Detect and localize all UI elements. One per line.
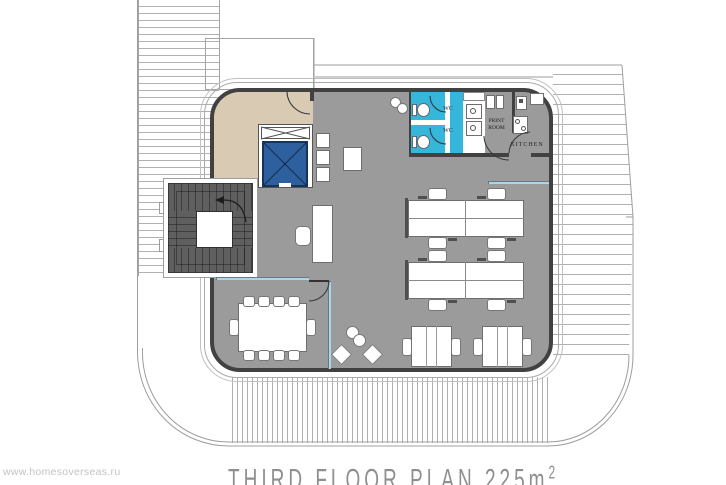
storage-box-1: [316, 133, 330, 148]
chair: [402, 338, 412, 356]
print-room-label-2: ROOM: [485, 126, 508, 132]
desk-bank-1-divider-h: [408, 218, 524, 219]
roof-hatch-right: [553, 65, 635, 355]
hot-desk-1-line: [436, 326, 437, 367]
stair-core: [196, 211, 233, 248]
lounge-pouf-2: [353, 334, 366, 347]
chair: [428, 188, 447, 200]
plan-title: THIRD FLOOR PLAN 225m2: [228, 462, 555, 485]
exec-chair: [295, 226, 311, 246]
elevator-door-notch: [279, 183, 291, 187]
conference-chair: [288, 296, 300, 307]
conference-chair: [258, 350, 270, 361]
chair: [487, 237, 506, 249]
floor-plan-canvas: WC WC PRINT ROOM KITCHEN: [0, 0, 726, 485]
conference-chair: [306, 319, 316, 336]
chair: [487, 299, 506, 311]
conference-chair: [288, 350, 300, 361]
chair: [451, 338, 461, 356]
hob-burner-2: [521, 126, 526, 131]
conference-chair: [243, 296, 255, 307]
watermark: www.homesoverseas.ru: [3, 466, 120, 478]
chair: [428, 299, 447, 311]
plan-title-text: THIRD FLOOR PLAN 225m: [228, 465, 549, 485]
wall-bottom-left-segment: [409, 153, 509, 157]
copier-2: [496, 95, 504, 109]
hot-desk-1: [411, 326, 452, 367]
desk-monitor: [507, 300, 516, 303]
wc-stall-divider: [411, 120, 445, 125]
hot-desk-1-line: [426, 326, 427, 367]
coffee-machine-dot: [519, 99, 523, 103]
storage-box-2: [316, 150, 330, 165]
chair: [487, 188, 506, 200]
stair-window-notch-2: [159, 239, 164, 252]
conference-chair: [273, 350, 285, 361]
wc-counter: [463, 92, 485, 101]
cabinet-box: [343, 147, 362, 171]
conference-chair: [229, 319, 239, 336]
sink-1-basin: [470, 108, 476, 114]
desk-monitor: [477, 258, 486, 261]
desk-monitor: [448, 300, 457, 303]
wc-door-wall: [445, 92, 450, 153]
print-room-label-1: PRINT: [485, 119, 508, 125]
hot-desk-2: [482, 326, 523, 367]
coat-stand-2: [397, 103, 408, 114]
stair-window-notch-1: [159, 202, 164, 214]
conference-chair: [258, 296, 270, 307]
chair: [428, 237, 447, 249]
conference-chair: [273, 296, 285, 307]
storage-box-3: [316, 167, 330, 182]
hot-desk-2-line: [507, 326, 508, 367]
wall-bottom-right-segment: [531, 153, 549, 157]
conference-chair: [243, 350, 255, 361]
elevator-cab: [262, 141, 308, 187]
elevator-machine-box: [261, 127, 310, 139]
hot-desk-2-line: [497, 326, 498, 367]
chair: [487, 250, 506, 262]
desk-monitor: [477, 196, 486, 199]
glass-partition-right: [488, 181, 549, 184]
sink-2-basin: [470, 125, 476, 131]
hob-burner-1: [515, 119, 520, 124]
terrace-hatch-bottom: [228, 377, 548, 443]
meeting-door-leaf: [309, 280, 329, 282]
desk-bank-2-divider-h: [408, 280, 524, 281]
chair: [473, 338, 483, 356]
meeting-glass-wall-v: [328, 281, 331, 369]
kitchen-corner-unit: [530, 93, 544, 105]
desk-monitor: [507, 238, 516, 241]
entry-door-jamb: [310, 92, 314, 101]
exec-desk: [312, 205, 333, 263]
toilet-2-bowl: [417, 135, 430, 149]
desk-monitor: [418, 258, 427, 261]
plan-title-superscript: 2: [549, 462, 556, 483]
wc-label-lower: WC: [438, 128, 458, 134]
chair: [428, 250, 447, 262]
wc-label-upper: WC: [438, 106, 458, 112]
kitchen-label: KITCHEN: [506, 142, 548, 148]
desk-monitor: [448, 238, 457, 241]
chair: [522, 338, 532, 356]
meeting-glass-wall-h: [216, 277, 309, 280]
desk-monitor: [418, 196, 427, 199]
conference-table: [238, 303, 307, 352]
toilet-1-bowl: [417, 103, 430, 117]
copier-1: [486, 95, 495, 109]
